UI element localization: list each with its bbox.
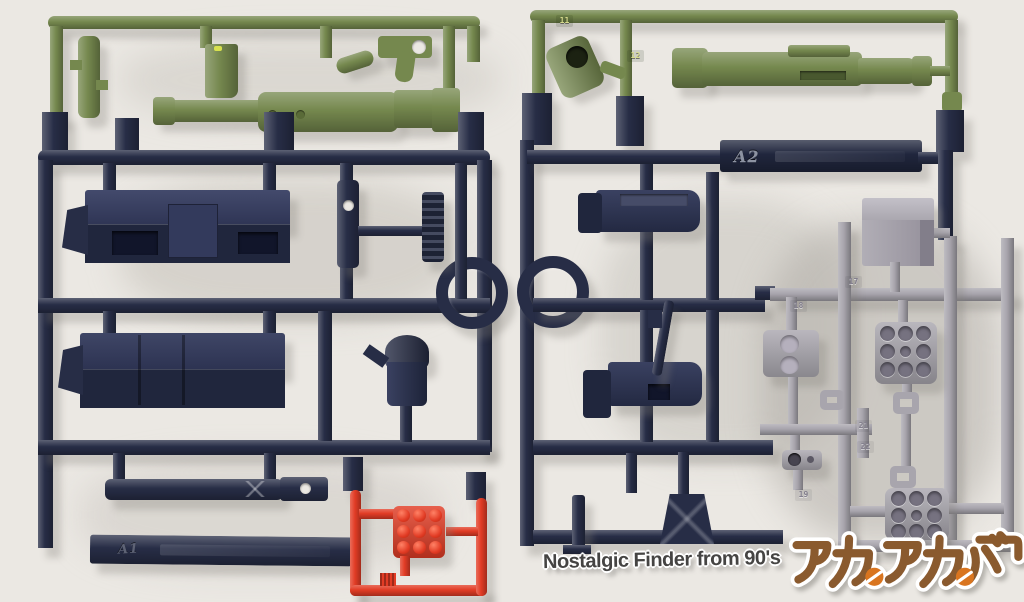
runner-bar xyxy=(678,452,689,496)
molded-text xyxy=(160,544,330,557)
rocket-launcher-sight xyxy=(788,45,850,57)
magazine-part xyxy=(205,44,238,98)
runner-bar-gray xyxy=(948,503,1004,514)
missile-pod-part xyxy=(393,506,445,558)
pod-hole xyxy=(900,346,911,357)
hinge-bracket-hole xyxy=(780,335,799,353)
part-number: 17 xyxy=(849,278,859,286)
missile-tip xyxy=(429,525,442,538)
runner-bar xyxy=(706,310,719,442)
part-number: 18 xyxy=(794,302,804,310)
runner-bar xyxy=(626,453,637,493)
runner-bar xyxy=(533,530,783,544)
gun-receiver-detail xyxy=(648,384,670,400)
runner-bar xyxy=(706,172,719,300)
runner-bar xyxy=(527,150,723,164)
runner-bar-red xyxy=(350,490,361,596)
runner-post xyxy=(115,118,139,154)
stand-base-part xyxy=(660,494,714,544)
part-number: 11 xyxy=(560,17,570,25)
runner-bar xyxy=(264,453,276,481)
runner-bar-gray xyxy=(890,262,900,292)
sensor-lens xyxy=(788,453,801,466)
rocket-launcher-muzzle xyxy=(912,56,932,86)
runner-post xyxy=(264,112,294,154)
rocket-launcher-body xyxy=(702,52,862,86)
rocket-launcher-barrel xyxy=(858,58,916,84)
runner-bar-red xyxy=(446,527,478,536)
square-link xyxy=(893,392,919,414)
runner-bar xyxy=(455,163,467,299)
square-link xyxy=(820,390,844,410)
runner-tag-label: A2 xyxy=(734,147,760,166)
runner-bar xyxy=(113,453,125,481)
ammo-drum-body xyxy=(387,362,427,406)
part-number-tag: 22 xyxy=(857,441,874,453)
pod-hole xyxy=(927,508,942,523)
magazine-highlight xyxy=(214,46,222,51)
thin-lever-flag xyxy=(648,310,662,328)
runner-bar-red xyxy=(350,585,487,596)
pod-hole xyxy=(898,362,913,377)
pod-hole xyxy=(880,344,895,359)
machine-gun-butt xyxy=(432,88,460,132)
pod-hole xyxy=(916,362,931,377)
runner-ring xyxy=(517,256,589,328)
pod-hole xyxy=(927,491,942,506)
part-number-tag: 11 xyxy=(556,15,573,27)
runner-bar-gray xyxy=(898,300,908,322)
runner-post-cap xyxy=(942,92,962,112)
hinge-bracket-hole xyxy=(780,356,799,374)
container-part-end xyxy=(62,205,88,255)
red-ribbed-bit xyxy=(380,573,396,586)
missile-tip xyxy=(429,541,442,554)
pod-hole xyxy=(898,326,913,341)
part-number: 22 xyxy=(861,443,871,451)
part-number-tag: 12 xyxy=(627,50,644,62)
rocket-launcher-slot xyxy=(800,71,846,80)
pod-housing-part xyxy=(862,198,934,222)
missile-tip xyxy=(397,525,410,538)
runner-post xyxy=(343,457,363,491)
container-part-slot xyxy=(112,231,158,255)
container-part-inset xyxy=(168,204,218,258)
photo-model-kit-runners: A1 11 12 xyxy=(0,0,1024,602)
grip-part-flange xyxy=(96,80,108,90)
pod-hole xyxy=(916,344,931,359)
gun-receiver-grip xyxy=(583,370,611,418)
runner-bar-gray xyxy=(850,506,886,517)
runner-post xyxy=(458,112,484,154)
runner-bar xyxy=(48,16,480,29)
missile-tip xyxy=(397,541,410,554)
runner-bar-red xyxy=(476,498,487,596)
runner-post xyxy=(466,472,486,500)
runner-bar xyxy=(443,26,455,94)
missile-tip xyxy=(413,509,426,522)
runner-bar xyxy=(533,440,773,455)
grip-part-flange xyxy=(70,60,82,70)
runner-bar xyxy=(320,26,332,58)
runner-bar-gray xyxy=(902,384,912,392)
runner-bar xyxy=(50,26,63,120)
pod-hole xyxy=(911,510,922,521)
part-number: 21 xyxy=(859,422,869,430)
runner-bar xyxy=(938,150,953,240)
runner-bar xyxy=(520,140,534,546)
runner-ring xyxy=(436,257,508,329)
part-number: 12 xyxy=(631,52,641,60)
square-link xyxy=(890,466,916,488)
runner-bar xyxy=(640,164,653,300)
blade-bracket-hole xyxy=(300,483,311,494)
container-part-slot xyxy=(238,232,278,254)
missile-tip xyxy=(429,509,442,522)
runner-bar-gray xyxy=(1001,238,1014,538)
runner-bar xyxy=(103,163,116,191)
missile-tip xyxy=(413,541,426,554)
runner-bar-gray xyxy=(793,470,803,490)
watermark-text: Nostalgic Finder from 90's xyxy=(543,548,781,572)
runner-bar xyxy=(532,20,545,96)
runner-bar xyxy=(103,311,116,335)
watermark-logo-katakana xyxy=(789,527,1024,594)
runner-bar-gray xyxy=(838,222,851,542)
grip-part xyxy=(78,36,100,118)
runner-bar-red xyxy=(359,509,395,519)
runner-bar xyxy=(263,163,276,191)
pod-hole xyxy=(891,508,906,523)
runner-tag: A2 xyxy=(720,140,922,172)
runner-bar xyxy=(263,311,276,335)
pod-hole xyxy=(880,362,895,377)
pod-hole xyxy=(916,326,931,341)
gun-receiver-grip xyxy=(578,193,602,233)
runner-tag: A1 xyxy=(90,535,352,567)
missile-tip xyxy=(413,525,426,538)
part-number-tag: 19 xyxy=(795,489,812,501)
pod-hole xyxy=(880,326,895,341)
runner-tag-label: A1 xyxy=(118,541,140,557)
runner-bar-gray xyxy=(901,414,911,466)
runner-bar-gray xyxy=(788,377,798,424)
runner-bar xyxy=(358,226,422,236)
runner-bar xyxy=(530,10,958,23)
pod-hole xyxy=(909,491,924,506)
sensor-lens-small xyxy=(807,456,814,463)
missile-tip xyxy=(397,509,410,522)
part-number-tag: 21 xyxy=(855,420,872,432)
part-number-tag: 18 xyxy=(790,300,807,312)
machine-gun-rivet xyxy=(296,110,305,119)
runner-bar-red xyxy=(400,556,410,576)
launcher-nozzle-bore xyxy=(566,46,588,68)
part-number: 19 xyxy=(799,491,809,499)
gun-receiver-slot xyxy=(620,194,688,206)
sling-strip-hole xyxy=(343,200,354,211)
runner-post xyxy=(522,93,552,145)
molded-text xyxy=(775,151,905,162)
pod-face-plate xyxy=(875,322,937,384)
runner-bar xyxy=(38,160,53,548)
container-part-seam xyxy=(182,335,185,405)
runner-bar xyxy=(945,20,958,94)
pod-housing-side xyxy=(920,220,934,266)
machine-gun-muzzle xyxy=(153,97,175,125)
runner-bar xyxy=(318,311,332,441)
runner-post xyxy=(936,110,964,152)
blade-x-detail xyxy=(243,481,267,497)
runner-post xyxy=(42,112,68,154)
runner-bar xyxy=(930,66,950,76)
runner-bar xyxy=(467,26,480,62)
thin-blade-part xyxy=(572,495,585,551)
sling-strip-part xyxy=(337,180,359,268)
runner-post xyxy=(616,96,644,146)
trigger-part-hole xyxy=(412,40,426,54)
part-number-tag: 17 xyxy=(845,276,862,288)
container-part-end xyxy=(58,345,83,395)
runner-bar-gray xyxy=(790,435,800,451)
container-part-seam xyxy=(138,335,141,405)
ribbed-grip-part xyxy=(422,192,444,262)
pod-hole xyxy=(891,491,906,506)
runner-bar xyxy=(400,406,412,442)
